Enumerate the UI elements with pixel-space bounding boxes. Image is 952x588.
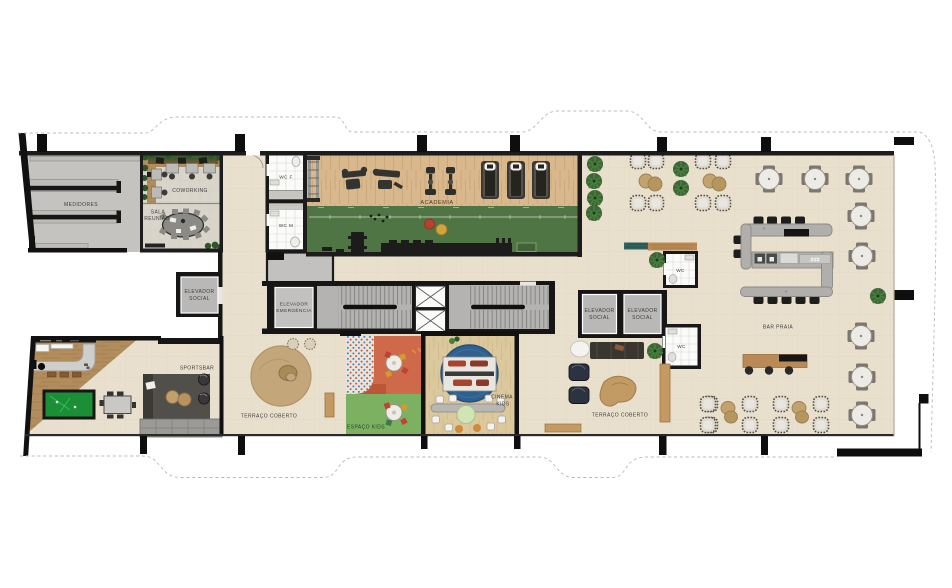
svg-text:WC: WC bbox=[676, 268, 685, 273]
svg-text:ACADEMIA: ACADEMIA bbox=[420, 200, 453, 206]
svg-text:ELEVADOR: ELEVADOR bbox=[184, 289, 214, 295]
svg-text:SOCIAL: SOCIAL bbox=[589, 315, 610, 321]
svg-text:WC: WC bbox=[677, 344, 686, 349]
svg-text:COWORKING: COWORKING bbox=[172, 188, 208, 194]
svg-text:SPORTSBAR: SPORTSBAR bbox=[180, 366, 214, 372]
svg-text:SOCIAL: SOCIAL bbox=[632, 315, 653, 321]
svg-text:SOCIAL: SOCIAL bbox=[189, 296, 210, 302]
svg-text:###: ### bbox=[810, 258, 819, 264]
svg-text:CINEMA: CINEMA bbox=[491, 395, 513, 401]
svg-text:KIDS: KIDS bbox=[496, 402, 510, 408]
svg-text:EMERGÊNCIA: EMERGÊNCIA bbox=[276, 306, 312, 313]
svg-text:ELEVADOR: ELEVADOR bbox=[280, 302, 309, 307]
svg-text:BAR PRAIA: BAR PRAIA bbox=[763, 325, 794, 331]
svg-text:REUNIÃO: REUNIÃO bbox=[144, 215, 170, 222]
svg-text:MEDIDORES: MEDIDORES bbox=[64, 202, 98, 208]
svg-text:SALA: SALA bbox=[151, 210, 166, 216]
svg-text:WC F: WC F bbox=[279, 175, 293, 180]
svg-text:TERRAÇO COBERTO: TERRAÇO COBERTO bbox=[592, 413, 648, 419]
svg-text:WC M: WC M bbox=[279, 223, 294, 228]
svg-text:ELEVADOR: ELEVADOR bbox=[584, 308, 614, 314]
svg-text:TERRAÇO COBERTO: TERRAÇO COBERTO bbox=[241, 414, 297, 420]
svg-text:ESPAÇO KIDS: ESPAÇO KIDS bbox=[347, 425, 385, 431]
svg-text:ELEVADOR: ELEVADOR bbox=[627, 308, 657, 314]
